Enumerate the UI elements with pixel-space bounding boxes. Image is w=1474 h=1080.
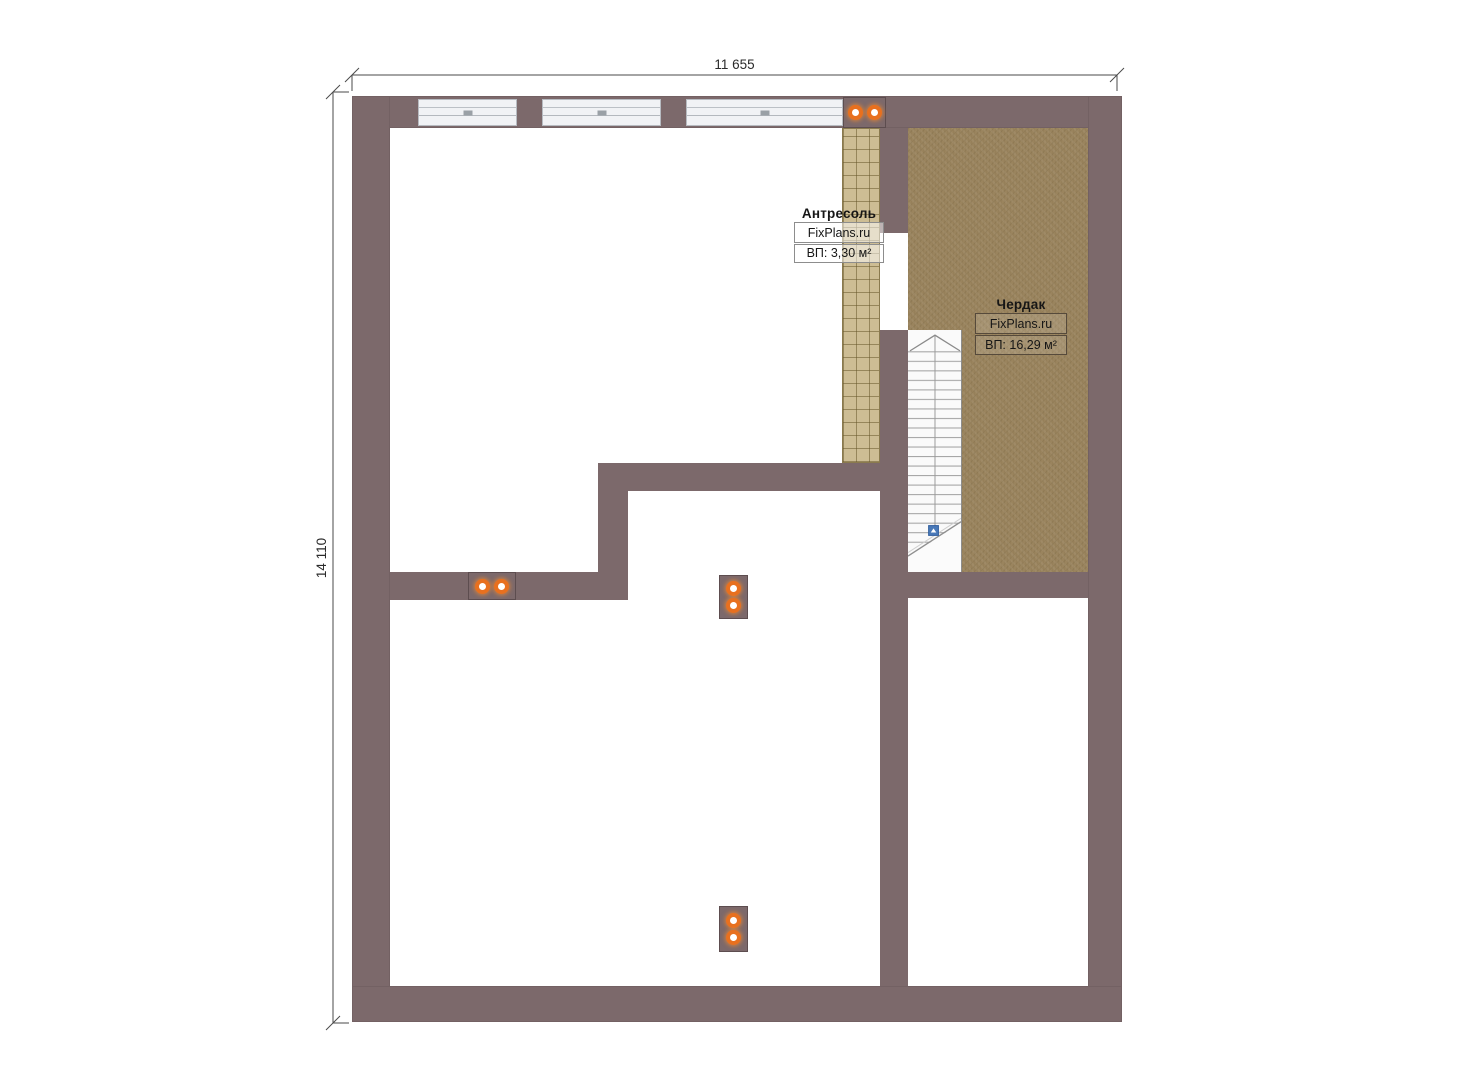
- room-area-box: ВП: 3,30 м²: [794, 244, 884, 263]
- vent-icon: [726, 930, 741, 945]
- staircase-drawing: [908, 330, 961, 572]
- chimney-block-top: [843, 97, 886, 128]
- chimney-pillar-center: [719, 575, 748, 619]
- vent-icon: [475, 579, 490, 594]
- floor-plan-page: { "dimensions": { "width_label": "11 655…: [0, 0, 1474, 1080]
- watermark-box: FixPlans.ru: [975, 313, 1067, 334]
- vent-icon: [848, 105, 863, 120]
- room-title-attic: Чердак: [975, 297, 1067, 312]
- wall-interior-attic-bottom: [908, 572, 1088, 598]
- vent-icon: [726, 581, 741, 596]
- dimension-height-label: 14 110: [314, 523, 330, 593]
- chimney-pillar-bottom: [719, 906, 748, 952]
- stair-landing-opening: [880, 233, 908, 330]
- window-2: [542, 99, 661, 126]
- stair-direction-marker-icon: [929, 526, 939, 536]
- wall-interior-center-horizontal: [598, 463, 886, 491]
- dimension-width-label: 11 655: [352, 57, 1117, 72]
- window-1: [418, 99, 517, 126]
- vent-icon: [726, 598, 741, 613]
- mezzanine-floor-hatch: [842, 128, 880, 463]
- room-title-mezzanine: Антресоль: [794, 206, 884, 221]
- vent-icon: [726, 913, 741, 928]
- vent-icon: [867, 105, 882, 120]
- watermark-box: FixPlans.ru: [794, 222, 884, 243]
- wall-right: [1088, 96, 1122, 1022]
- room-label-attic: Чердак FixPlans.ru ВП: 16,29 м²: [975, 297, 1067, 355]
- wall-left: [352, 96, 390, 1022]
- room-label-mezzanine: Антресоль FixPlans.ru ВП: 3,30 м²: [794, 206, 884, 263]
- staircase: [908, 330, 962, 572]
- window-3: [686, 99, 843, 126]
- wall-bottom: [352, 986, 1122, 1022]
- vent-icon: [494, 579, 509, 594]
- chimney-block-left-wall: [468, 572, 516, 600]
- room-area-box: ВП: 16,29 м²: [975, 335, 1067, 355]
